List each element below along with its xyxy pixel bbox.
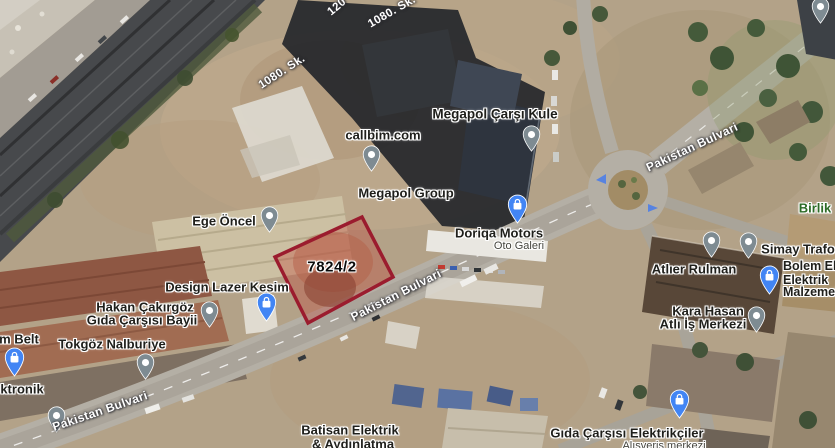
- map-pin-icon: [739, 232, 758, 259]
- poi-label-bolem-line3[interactable]: Malzemeleri: [783, 285, 835, 299]
- poi-label-batisan-line2[interactable]: & Aydınlatma: [312, 437, 394, 448]
- pin-bolem-elektrik[interactable]: [759, 265, 780, 295]
- satellite-map-canvas[interactable]: 120 1080. Sk. 1080. Sk. Pakistan Bulvari…: [0, 0, 835, 448]
- poi-label-elektronik[interactable]: ktronik: [0, 382, 43, 397]
- pin-megapol-carsi-kule[interactable]: [522, 125, 541, 152]
- poi-label-megapol-carsi-kule[interactable]: Megapol Çarşı Kule: [432, 107, 557, 122]
- poi-sublabel-oto-galeri[interactable]: Oto Galeri: [494, 240, 544, 252]
- parcel-number-label: 7824/2: [307, 259, 356, 276]
- poi-label-design-lazer[interactable]: Design Lazer Kesim: [165, 280, 289, 295]
- poi-label-megapol-group[interactable]: Megapol Group: [358, 186, 453, 201]
- poi-label-simay-trafo[interactable]: Simay Trafo: [761, 242, 835, 257]
- map-pin-icon: [702, 231, 721, 258]
- map-pin-icon: [136, 353, 155, 380]
- pin-megapol-group[interactable]: [507, 194, 528, 224]
- shopping-bag-pin-icon: [507, 194, 528, 224]
- poi-label-ege-oncel[interactable]: Ege Öncel: [192, 214, 256, 229]
- pin-ege-oncel[interactable]: [260, 206, 279, 233]
- map-pin-icon: [260, 206, 279, 233]
- poi-label-callbim[interactable]: callbim.com: [345, 128, 420, 143]
- poi-label-kara-hasan-line2[interactable]: Atlı İş Merkezi: [660, 317, 747, 332]
- poi-label-m-belt[interactable]: m Belt: [0, 332, 39, 347]
- poi-label-hakan-line2[interactable]: Gıda Çarşısı Bayii: [87, 313, 198, 328]
- map-pin-icon: [747, 306, 766, 333]
- map-pin-icon: [200, 301, 219, 328]
- map-pin-icon: [811, 0, 830, 24]
- map-pin-icon: [522, 125, 541, 152]
- pin-m-belt[interactable]: [4, 347, 25, 377]
- pin-tokgoz-nalburiye[interactable]: [136, 353, 155, 380]
- pin-design-lazer[interactable]: [256, 292, 277, 322]
- pin-kara-hasan[interactable]: [747, 306, 766, 333]
- pin-atlier-rulman[interactable]: [702, 231, 721, 258]
- shopping-bag-pin-icon: [4, 347, 25, 377]
- shopping-bag-pin-icon: [759, 265, 780, 295]
- map-pin-icon: [362, 145, 381, 172]
- poi-label-batisan-line1[interactable]: Batisan Elektrik: [301, 423, 399, 438]
- pin-gida-carsisi[interactable]: [669, 389, 690, 419]
- pin-simay-trafo[interactable]: [739, 232, 758, 259]
- poi-label-doriqa-motors[interactable]: Doriqa Motors: [455, 226, 543, 241]
- poi-label-gida-carsisi[interactable]: Gıda Çarşısı Elektrikçiler: [550, 426, 703, 441]
- park-label-birlik[interactable]: Birlik: [799, 201, 832, 216]
- shopping-bag-pin-icon: [256, 292, 277, 322]
- poi-label-bolem-line1[interactable]: Bolem Elektrik: [783, 259, 835, 273]
- pin-top-right[interactable]: [811, 0, 830, 24]
- pin-hakan-cakirgoz[interactable]: [200, 301, 219, 328]
- pin-callbim[interactable]: [362, 145, 381, 172]
- satellite-imagery: [0, 0, 835, 448]
- poi-sublabel-alisveris-merkezi[interactable]: Alışveriş merkezi: [622, 440, 705, 448]
- shopping-bag-pin-icon: [669, 389, 690, 419]
- poi-label-atlier-rulman[interactable]: Atlıer Rulman: [652, 262, 737, 277]
- poi-label-tokgoz-nalburiye[interactable]: Tokgöz Nalburiye: [58, 337, 165, 352]
